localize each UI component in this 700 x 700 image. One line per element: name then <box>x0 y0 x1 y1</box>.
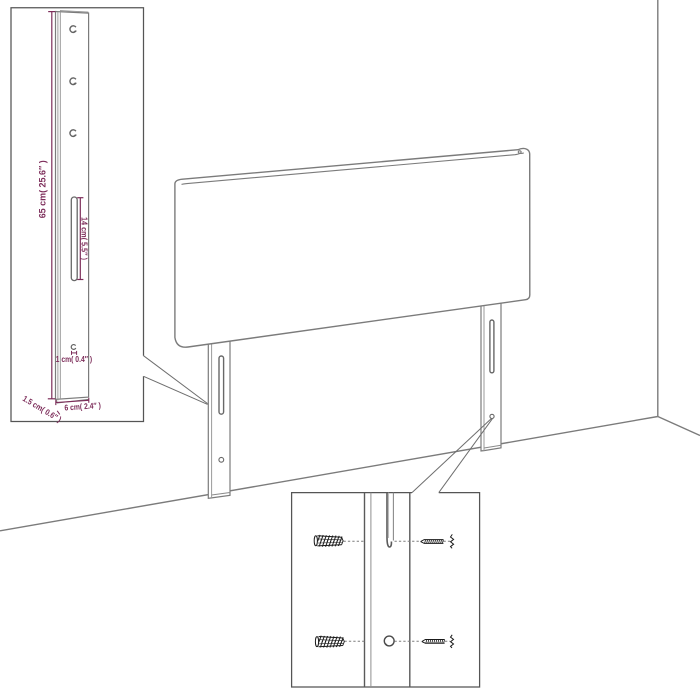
svg-text:1 cm( 0.4″ ): 1 cm( 0.4″ ) <box>56 355 93 364</box>
svg-text:14 cm( 5.5″ ): 14 cm( 5.5″ ) <box>80 217 90 260</box>
svg-text:65 cm( 25.6″ ): 65 cm( 25.6″ ) <box>38 160 49 218</box>
